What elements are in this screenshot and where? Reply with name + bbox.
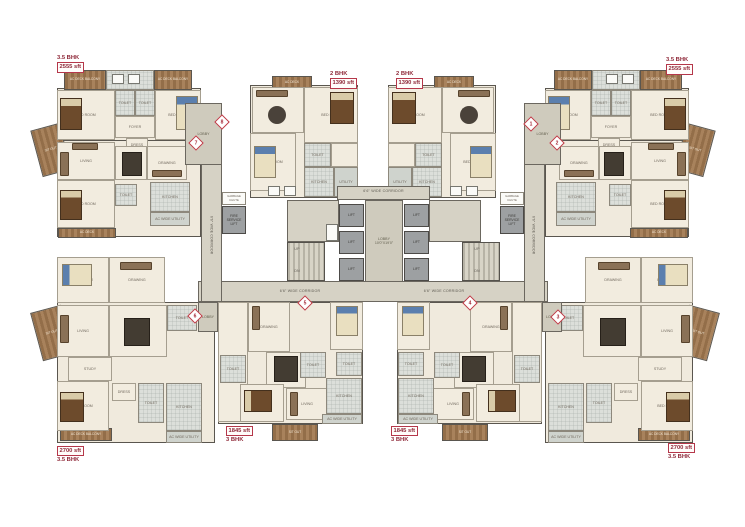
tr-toilet-2-label: TOILET [592, 91, 610, 115]
bmr-kitchen: KITCHEN [398, 378, 434, 414]
garbage-chute-left-label: GARBAGE CHUTE [223, 193, 245, 204]
bml-toilet-c: TOILET [300, 352, 326, 378]
lobby-upper-right: LOBBY [524, 103, 561, 165]
br-dress-label: DRESS [615, 384, 637, 400]
bl-bed-top-furn [62, 264, 92, 286]
br-drawing-sofa [598, 262, 630, 270]
lift-right-2: LIFT [404, 231, 429, 254]
tml-bed-r-furn [330, 92, 354, 124]
bl-toilet-label: TOILET [139, 384, 163, 422]
unit-tag-5: 2700 sft3.5 BHK [57, 446, 84, 465]
bml-toilet-w: TOILET [220, 355, 246, 383]
tml-appliance-1 [268, 186, 280, 196]
tl-appliance-1 [112, 74, 124, 84]
bl-study-label: STUDY [69, 358, 111, 380]
bmr-sitout-label: SIT OUT [443, 425, 487, 440]
tr-toilet-1: TOILET [611, 90, 631, 116]
stair-up-right: UP [470, 246, 484, 252]
tl-toilet-1-label: TOILET [116, 91, 134, 115]
bmr-drawing-sofa [500, 306, 508, 330]
bl-kitchen-label: KITCHEN [167, 384, 201, 430]
unit-marker-number: 2 [553, 139, 562, 148]
br-utility-label: AC WIDE UTILITY [549, 432, 583, 442]
fire-service-lift-right-label: FIRE SERVICE LIFT [501, 207, 523, 233]
unit-tag-sft: 1845 sft [226, 426, 253, 436]
bl-drawing-sofa [120, 262, 152, 270]
unit-marker-number: 5 [301, 299, 310, 308]
tr-appliance-1 [622, 74, 634, 84]
tl-deck-s: AC DECK [58, 228, 116, 238]
tl-sofa-1 [60, 152, 69, 176]
tl-foyer: FOYER [115, 116, 155, 138]
tr-foyer-label: FOYER [592, 117, 630, 137]
tml-bed-l-furn [254, 146, 276, 178]
unit-marker-number: 7 [192, 139, 201, 148]
br-living-sofa [681, 315, 690, 343]
lobby-upper-left-label: LOBBY [186, 104, 221, 164]
unit-tag-sft: 1845 sft [391, 426, 418, 436]
tr-kitchen: KITCHEN [556, 182, 596, 212]
tl-toilet-2-label: TOILET [136, 91, 154, 115]
tml-kitchen: KITCHEN [304, 167, 334, 197]
bmr-toilet-e: TOILET [514, 355, 540, 383]
tr-toilet-3: TOILET [609, 184, 631, 206]
bl-kitchen: KITCHEN [166, 383, 202, 431]
tml-toilet-label: TOILET [305, 144, 330, 166]
tr-appliance-2 [606, 74, 618, 84]
tml-toilet: TOILET [304, 143, 331, 167]
tml-pass [331, 143, 358, 167]
tr-kitchen-label: KITCHEN [557, 183, 595, 211]
bmr-toilet-l: TOILET [398, 352, 424, 376]
tl-utility: AC WIDE UTILITY [150, 212, 190, 226]
bmr-bed-b-furn [488, 390, 516, 412]
tmr-bed-r-furn [470, 146, 492, 178]
unit-tag-sft: 2555 sft [666, 64, 693, 74]
bmr-utility-label: AC WIDE UTILITY [399, 415, 437, 423]
unit-marker-number: 3 [554, 313, 563, 322]
br-toilet-label: TOILET [587, 384, 611, 422]
unit-tag-bhk: 3.5 BHK [668, 453, 695, 461]
tl-kitchen: KITCHEN [150, 182, 190, 212]
lift-left-3-label: LIFT [340, 259, 363, 280]
tl-dining-table [122, 152, 142, 176]
br-bed-master-furn [666, 392, 690, 422]
tmr-toilet: TOILET [415, 143, 442, 167]
tl-foyer-label: FOYER [116, 117, 154, 137]
bl-study: STUDY [68, 357, 112, 381]
br-study-label: STUDY [639, 358, 681, 380]
tr-bed-3-furn [664, 190, 686, 220]
unit-tag-sft: 2700 sft [57, 446, 84, 456]
corridor-label-vright: 6'6" WIDE CORRIDOR [526, 200, 541, 270]
unit-tag-6: 1845 sft3 BHK [226, 426, 253, 445]
bml-toilet-r-label: TOILET [337, 353, 361, 375]
lobby-upper-right-label: LOBBY [525, 104, 560, 164]
bml-bed-tr-furn [336, 306, 358, 336]
tr-deck-s-label: AC DECK [631, 229, 687, 237]
bml-kitchen: KITCHEN [326, 378, 362, 414]
tr-toilet-1-label: TOILET [612, 91, 630, 115]
bml-sitout: SIT OUT [272, 424, 318, 441]
unit-tag-sft: 2555 sft [57, 62, 84, 72]
bml-utility-label: AC WIDE UTILITY [323, 415, 361, 423]
lift-right-1: LIFT [404, 204, 429, 227]
unit-tag-1: 3.5 BHK2555 sft [57, 54, 84, 73]
tl-toilet-3: TOILET [115, 184, 137, 206]
br-toilet: TOILET [586, 383, 612, 423]
lift-left-1-label: LIFT [340, 205, 363, 226]
tl-deck-nw-label: AC DECK BALCONY [65, 71, 105, 89]
duct-box [326, 224, 338, 241]
garbage-chute-right-label: GARBAGE CHUTE [501, 193, 523, 204]
stair-dn-left: DN [290, 268, 304, 274]
bml-sitout-label: SIT OUT [273, 425, 317, 440]
unit-marker-number: 8 [218, 118, 227, 127]
unit-tag-sft: 1390 sft [396, 78, 423, 88]
tl-sofa-3 [152, 170, 182, 177]
fire-service-lift-right: FIRE SERVICE LIFT [500, 206, 524, 234]
unit-tag-bhk: 3 BHK [391, 436, 418, 444]
corridor-label-vleft: 6'6" WIDE CORRIDOR [204, 200, 219, 270]
bmr-bed-tl-furn [402, 306, 424, 336]
tl-deck-ne-label: AC DECK BALCONY [155, 71, 191, 89]
unit-tag-bhk: 3.5 BHK [57, 456, 84, 464]
lobby-core-label: LOBBY 10'0"X19'0" [366, 201, 402, 281]
corridor-stair-right [429, 200, 481, 242]
tl-bed-1-furn [60, 98, 82, 130]
lift-right-3: LIFT [404, 258, 429, 281]
corridor-label-top: 6'6" WIDE CORRIDOR [340, 187, 427, 195]
tmr-pass [388, 143, 415, 167]
tmr-appliance-2 [450, 186, 462, 196]
tl-sofa-2 [72, 143, 98, 150]
tl-bed-3-furn [60, 190, 82, 220]
tl-toilet-3-label: TOILET [116, 185, 136, 205]
bl-utility: AC WIDE UTILITY [166, 431, 202, 443]
tmr-toilet-label: TOILET [416, 144, 441, 166]
bml-living-sofa [290, 392, 298, 416]
tl-deck-ne: AC DECK BALCONY [154, 70, 192, 90]
unit-tag-sft: 1390 sft [330, 78, 357, 88]
bmr-toilet-c: TOILET [434, 352, 460, 378]
unit-marker-number: 1 [527, 120, 536, 129]
tr-deck-s: AC DECK [630, 228, 688, 238]
tl-deck-s-label: AC DECK [59, 229, 115, 237]
garbage-chute-right: GARBAGE CHUTE [500, 192, 524, 205]
bml-utility: AC WIDE UTILITY [322, 414, 362, 424]
unit-marker-number: 6 [191, 312, 200, 321]
bmr-living-sofa [462, 392, 470, 416]
tl-utility-label: AC WIDE UTILITY [151, 213, 189, 225]
floor-plan: AC DECK BALCONYAC DECK BALCONYSIT OUTAC … [0, 0, 745, 527]
tr-foyer: FOYER [591, 116, 631, 138]
bml-toilet-w-label: TOILET [221, 356, 245, 382]
bml-drawing-sofa [252, 306, 260, 330]
bmr-sitout: SIT OUT [442, 424, 488, 441]
tmr-appliance-1 [466, 186, 478, 196]
unit-tag-bhk: 3.5 BHK [666, 56, 693, 64]
unit-tag-7: 1845 sft3 BHK [391, 426, 418, 445]
br-dress: DRESS [614, 383, 638, 401]
tml-round-table [268, 106, 286, 124]
tr-deck-nw-label: AC DECK BALCONY [555, 71, 591, 89]
corridor-main [198, 281, 548, 302]
br-kitchen: KITCHEN [548, 383, 584, 431]
tr-toilet-3-label: TOILET [610, 185, 630, 205]
unit-tag-bhk: 2 BHK [330, 70, 357, 78]
bl-living-sofa [60, 315, 69, 343]
tl-toilet-1: TOILET [115, 90, 135, 116]
tr-bed-1-furn [664, 98, 686, 130]
tml-appliance-2 [284, 186, 296, 196]
tmr-sofa [458, 90, 490, 97]
bml-dining-table [274, 356, 298, 382]
tr-dining-table [604, 152, 624, 176]
bml-toilet-c-label: TOILET [301, 353, 325, 377]
unit-tag-2: 2 BHK1390 sft [330, 70, 357, 89]
tl-toilet-2: TOILET [135, 90, 155, 116]
tr-utility: AC WIDE UTILITY [556, 212, 596, 226]
lift-right-3-label: LIFT [405, 259, 428, 280]
tr-sofa-1 [677, 152, 686, 176]
unit-tag-bhk: 3.5 BHK [57, 54, 84, 62]
unit-tag-bhk: 2 BHK [396, 70, 423, 78]
bl-toilet: TOILET [138, 383, 164, 423]
unit-tag-sft: 2700 sft [668, 443, 695, 453]
bmr-kitchen-label: KITCHEN [399, 379, 433, 413]
br-utility: AC WIDE UTILITY [548, 431, 584, 443]
tl-kitchen-label: KITCHEN [151, 183, 189, 211]
bl-bed-master-furn [60, 392, 84, 422]
tr-sofa-3 [564, 170, 594, 177]
fire-service-lift-left: FIRE SERVICE LIFT [222, 206, 246, 234]
bl-utility-label: AC WIDE UTILITY [167, 432, 201, 442]
unit-tag-8: 2700 sft3.5 BHK [668, 443, 695, 462]
stair-dn-right: DN [470, 268, 484, 274]
tr-sofa-2 [648, 143, 674, 150]
tmr-round-table [460, 106, 478, 124]
bml-toilet-r: TOILET [336, 352, 362, 376]
tr-utility-label: AC WIDE UTILITY [557, 213, 595, 225]
lift-left-1: LIFT [339, 204, 364, 227]
tml-kitchen-label: KITCHEN [305, 168, 333, 196]
br-bed-top-furn [658, 264, 688, 286]
unit-tag-4: 3.5 BHK2555 sft [666, 56, 693, 75]
tl-deck-nw: AC DECK BALCONY [64, 70, 106, 90]
bmr-utility: AC WIDE UTILITY [398, 414, 438, 424]
corridor-label-right: 6'6" WIDE CORRIDOR [412, 287, 476, 295]
tmr-bed-l-furn [392, 92, 416, 124]
unit-marker-number: 4 [466, 299, 475, 308]
lobby-upper-left: LOBBY [185, 103, 222, 165]
corridor-label-left: 6'6" WIDE CORRIDOR [268, 287, 332, 295]
lift-left-2: LIFT [339, 231, 364, 254]
stair-up-left: UP [290, 246, 304, 252]
bl-dress: DRESS [112, 383, 136, 401]
unit-tag-3: 2 BHK1390 sft [396, 70, 423, 89]
bl-dining-table [124, 318, 150, 346]
br-study: STUDY [638, 357, 682, 381]
bml-bed-b-furn [244, 390, 272, 412]
lift-left-2-label: LIFT [340, 232, 363, 253]
br-dining-table [600, 318, 626, 346]
lobby-core: LOBBY 10'0"X19'0" [365, 200, 403, 282]
bmr-dining-table [462, 356, 486, 382]
tl-appliance-2 [128, 74, 140, 84]
bmr-toilet-l-label: TOILET [399, 353, 423, 375]
tml-sofa [256, 90, 288, 97]
fire-service-lift-left-label: FIRE SERVICE LIFT [223, 207, 245, 233]
lift-left-3: LIFT [339, 258, 364, 281]
bl-dress-label: DRESS [113, 384, 135, 400]
unit-tag-bhk: 3 BHK [226, 436, 253, 444]
lift-right-2-label: LIFT [405, 232, 428, 253]
bmr-toilet-c-label: TOILET [435, 353, 459, 377]
bml-kitchen-label: KITCHEN [327, 379, 361, 413]
tr-toilet-2: TOILET [591, 90, 611, 116]
br-kitchen-label: KITCHEN [549, 384, 583, 430]
lift-right-1-label: LIFT [405, 205, 428, 226]
tr-deck-nw: AC DECK BALCONY [554, 70, 592, 90]
bmr-toilet-e-label: TOILET [515, 356, 539, 382]
garbage-chute-left: GARBAGE CHUTE [222, 192, 246, 205]
